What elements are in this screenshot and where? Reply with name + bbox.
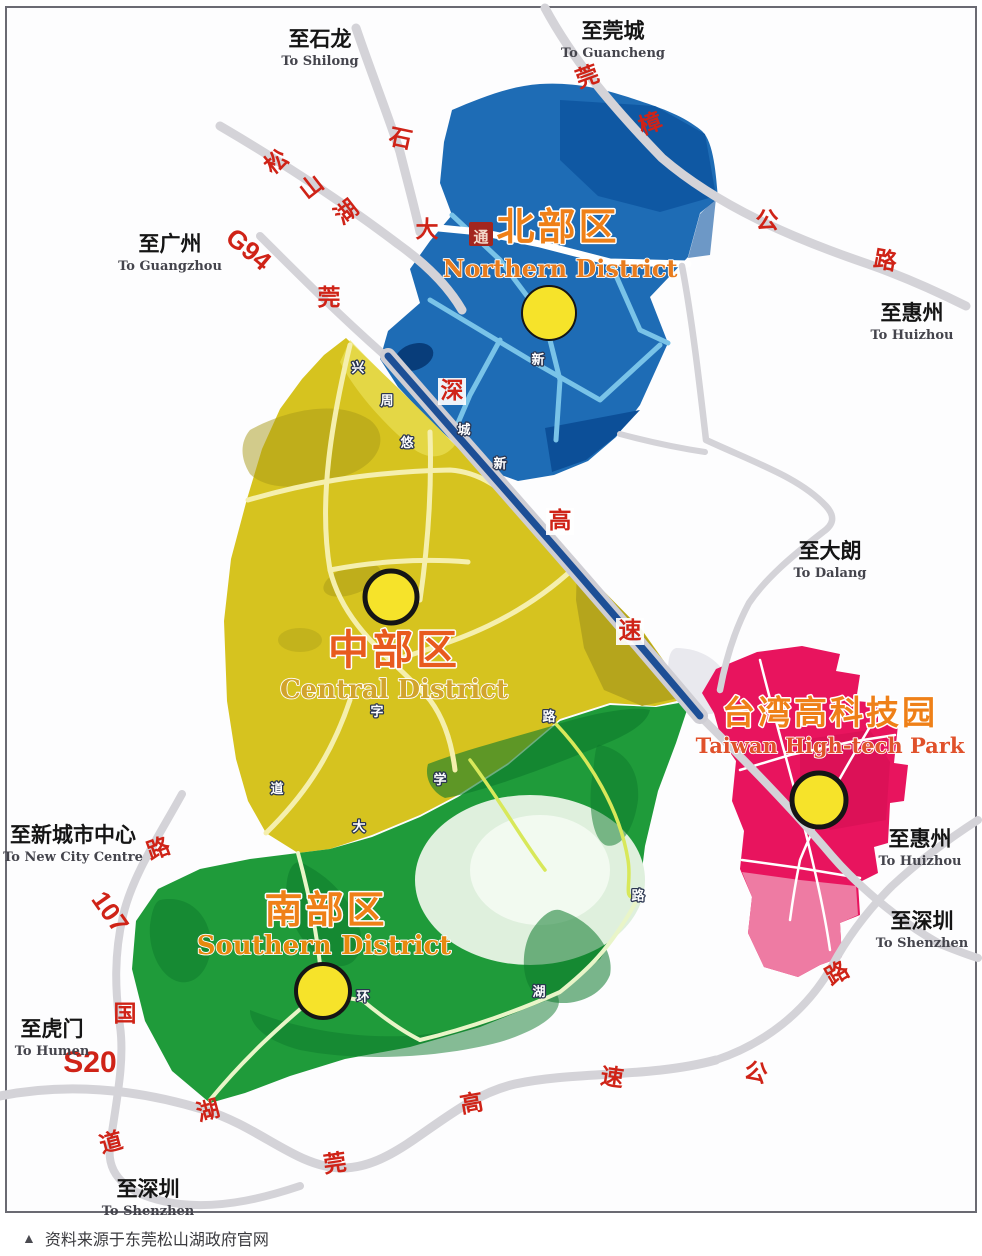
direction-label-zh: 至莞城: [582, 19, 645, 43]
direction-label-en: To Humen: [15, 1044, 90, 1059]
road-name-label: 高: [549, 507, 572, 533]
direction-label-en: To Guancheng: [561, 46, 665, 61]
direction-label-en: To New City Centre: [3, 850, 143, 865]
minor-road-label: 悠: [399, 435, 414, 450]
caption-text: 资料来源于东莞松山湖政府官网: [45, 1226, 269, 1250]
road-name-label: 大: [416, 216, 439, 242]
minor-road-label: 周: [380, 393, 393, 408]
direction-label-zh: 至深圳: [117, 1178, 180, 1201]
direction-label-en: To Dalang: [794, 566, 867, 581]
road-name-label: 高: [458, 1088, 485, 1118]
road-shield-label: 通: [473, 229, 488, 246]
direction-label-zh: 至深圳: [891, 910, 954, 933]
direction-label-en: To Huizhou: [870, 328, 953, 343]
minor-road-label: 新: [531, 352, 544, 367]
direction-label-en: To Shenzhen: [102, 1204, 195, 1219]
minor-road-label: 路: [542, 709, 556, 724]
minor-road-label: 字: [370, 704, 383, 719]
road-name-label: 莞: [322, 1149, 348, 1178]
minor-road-label: 环: [356, 989, 369, 1004]
minor-road-label: 道: [270, 781, 283, 796]
direction-label-zh: 至惠州: [881, 302, 944, 325]
district-label-zh-taiwan: 台湾高科技园: [722, 694, 938, 731]
minor-road-label: 大: [352, 819, 365, 834]
direction-label-zh: 至惠州: [889, 828, 952, 851]
south-lake-center: [470, 815, 610, 925]
road-name-label: 深: [441, 377, 464, 403]
direction-label-zh: 至广州: [139, 232, 202, 256]
triangle-icon: ▲: [22, 1230, 36, 1246]
direction-label-en: To Shilong: [281, 54, 358, 69]
minor-road-label: 兴: [351, 360, 364, 375]
road-name-label: 速: [619, 617, 642, 643]
minor-road-label: 新: [493, 456, 506, 471]
district-label-zh-south: 南部区: [264, 890, 387, 932]
direction-label-zh: 至新城市中心: [10, 823, 136, 847]
direction-label-zh: 至虎门: [21, 1017, 84, 1041]
direction-label-en: To Huizhou: [878, 854, 961, 869]
direction-label-en: To Guangzhou: [118, 259, 222, 274]
district-label-en-south: Southern District: [197, 931, 452, 961]
district-label-en-taiwan: Taiwan High-tech Park: [696, 733, 965, 758]
district-label-en-north: Northern District: [443, 254, 678, 283]
district-marker-south: [296, 964, 350, 1018]
district-label-zh-central: 中部区: [328, 627, 460, 673]
district-marker-north: [522, 286, 576, 340]
minor-road-label: 湖: [532, 984, 545, 999]
minor-road-label: 城: [457, 422, 470, 437]
map-canvas: 兴周悠城新新字路学大道环湖路 石松山湖大通G94莞莞樟公路深高速路公速高莞湖路1…: [0, 0, 982, 1256]
minor-road-label: 学: [433, 772, 446, 787]
map-caption: ▲ 资料来源于东莞松山湖政府官网: [22, 1226, 962, 1250]
direction-label-zh: 至大朗: [799, 540, 862, 563]
songshan-lake-map: 兴周悠城新新字路学大道环湖路 石松山湖大通G94莞莞樟公路深高速路公速高莞湖路1…: [0, 0, 982, 1256]
road-name-label: 公: [756, 207, 779, 233]
district-label-en-central: Central District: [280, 675, 508, 705]
central-dark-oval-2: [278, 628, 322, 652]
district-marker-taiwan: [792, 773, 846, 827]
direction-label-en: To Shenzhen: [876, 936, 969, 951]
road-name-label: 国: [114, 1000, 137, 1026]
minor-road-label: 路: [631, 888, 645, 903]
district-marker-central: [365, 571, 417, 623]
road-name-label: 速: [599, 1063, 625, 1092]
district-label-zh-north: 北部区: [496, 207, 619, 249]
road-name-label: 莞: [318, 284, 341, 310]
direction-label-zh: 至石龙: [289, 27, 352, 51]
